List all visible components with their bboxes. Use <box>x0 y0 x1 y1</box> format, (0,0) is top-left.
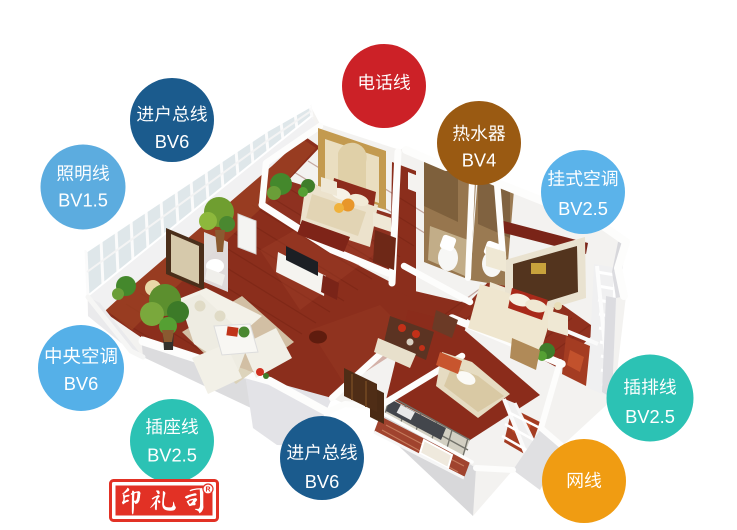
svg-text:BV6: BV6 <box>155 131 190 152</box>
svg-text:BV6: BV6 <box>305 471 340 492</box>
svg-text:BV4: BV4 <box>462 150 497 171</box>
svg-text:BV1.5: BV1.5 <box>58 189 108 210</box>
svg-text:BV2.5: BV2.5 <box>147 445 197 466</box>
svg-text:BV2.5: BV2.5 <box>558 198 608 219</box>
svg-text:BV6: BV6 <box>64 373 99 394</box>
svg-text:BV2.5: BV2.5 <box>625 406 675 427</box>
svg-text:R: R <box>205 487 210 494</box>
